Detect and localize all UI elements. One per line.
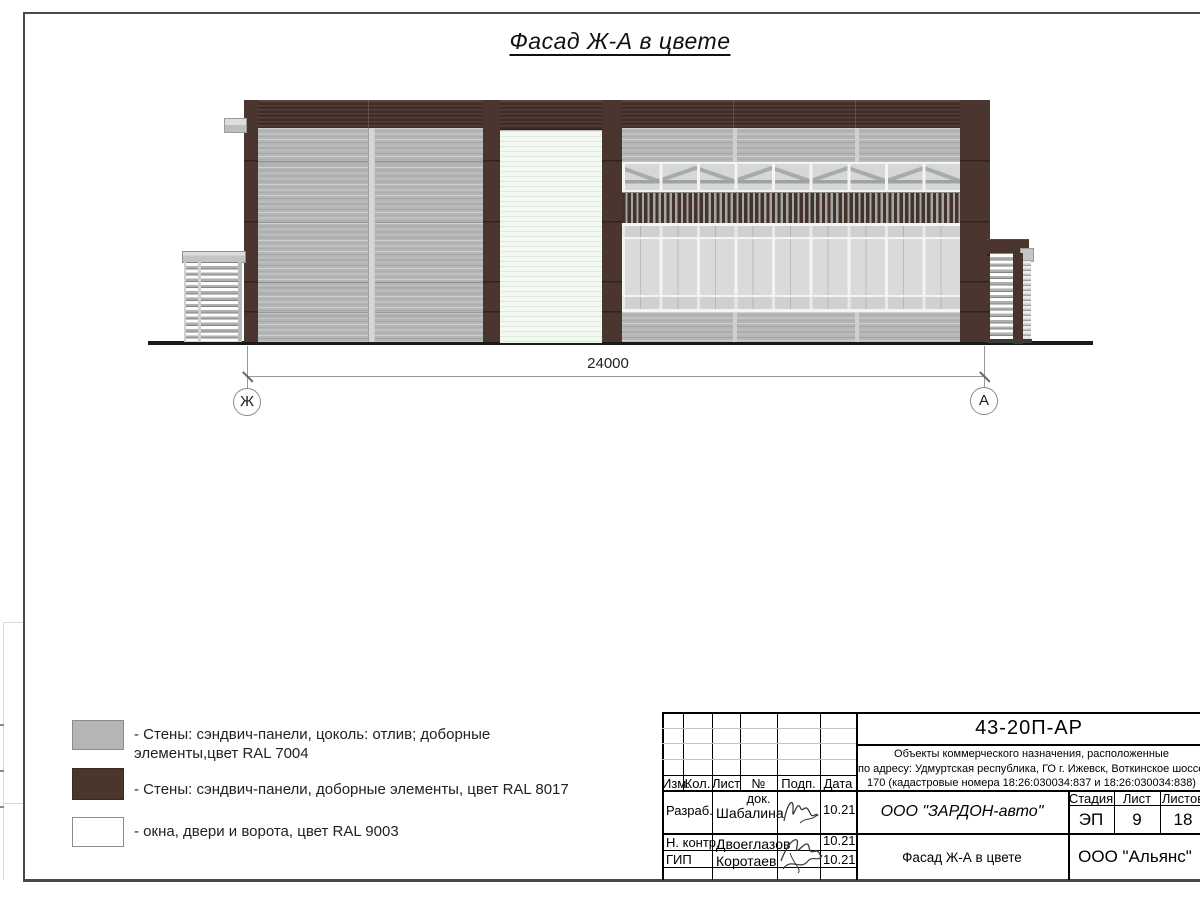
tb-stage-value: ЭП xyxy=(1068,810,1114,830)
tb-sheet-name: Фасад Ж-А в цвете xyxy=(856,850,1068,865)
tb-col-doc: № док. xyxy=(740,776,777,806)
tb-name: Шабалина xyxy=(716,805,784,821)
tb-col-kol: Кол. xyxy=(683,776,712,791)
tb-col-izm: Изм. xyxy=(662,776,683,791)
tb-line-light xyxy=(662,743,856,744)
title-block: Изм. Кол. Лист № док. Подп. Дата Разраб.… xyxy=(0,0,1200,900)
tb-role: Разраб. xyxy=(666,803,713,818)
tb-name: Коротаев xyxy=(716,853,776,869)
tb-line xyxy=(662,712,664,880)
tb-project-description: Объекты коммерческого назначения, распол… xyxy=(858,747,1200,791)
tb-col-podp: Подп. xyxy=(777,776,820,791)
tb-organization: ООО "Альянс" xyxy=(1068,847,1200,867)
tb-client: ООО "ЗАРДОН-авто" xyxy=(856,803,1068,821)
tb-role: Н. контр. xyxy=(666,835,720,850)
tb-doc-number: 43-20П-АР xyxy=(856,717,1200,740)
tb-sheet-value: 9 xyxy=(1114,810,1160,830)
tb-line xyxy=(712,712,713,880)
tb-line xyxy=(662,712,1200,714)
tb-total-value: 18 xyxy=(1160,810,1200,830)
tb-date: 10.21 xyxy=(823,852,856,867)
tb-role: ГИП xyxy=(666,852,692,867)
tb-date: 10.21 xyxy=(823,802,856,817)
tb-col-list: Лист xyxy=(712,776,740,791)
tb-stage-label: Стадия xyxy=(1068,791,1114,806)
tb-line-light xyxy=(662,728,856,729)
tb-line xyxy=(856,744,1200,746)
tb-date: 10.21 xyxy=(823,833,856,848)
tb-sheet-label: Лист xyxy=(1114,791,1160,806)
tb-line xyxy=(662,833,1200,835)
tb-col-data: Дата xyxy=(820,776,856,791)
drawing-sheet: Фасад Ж-А в цвете xyxy=(0,0,1200,900)
tb-line-light xyxy=(662,759,856,760)
signature-scribble xyxy=(778,831,824,877)
signature-scribble xyxy=(780,793,820,831)
tb-total-label: Листов xyxy=(1160,791,1200,806)
